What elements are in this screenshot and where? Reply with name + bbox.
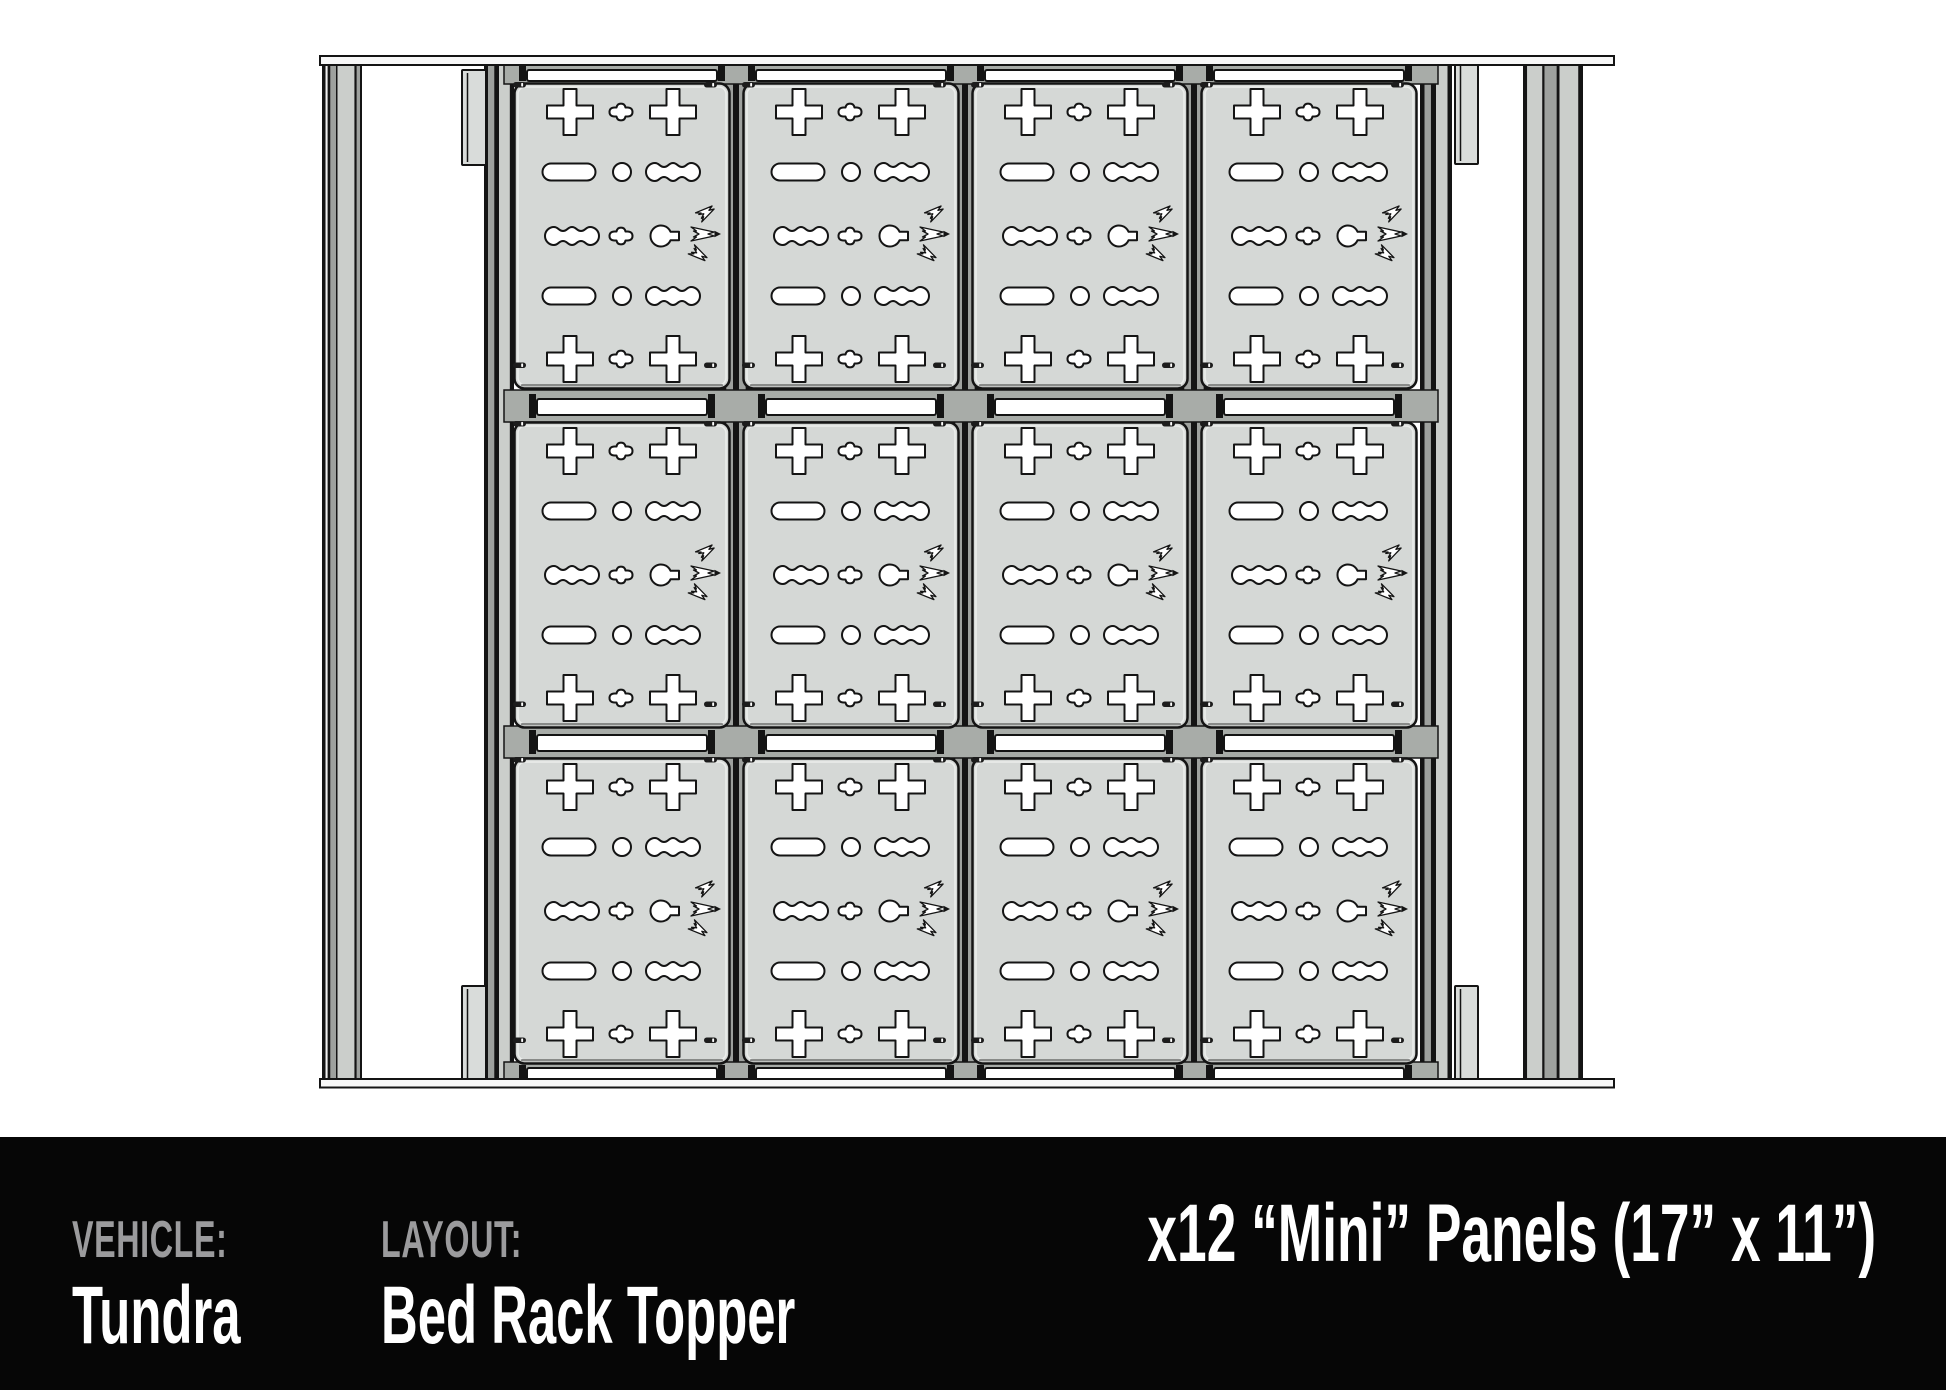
crossbar-slot	[1224, 735, 1394, 751]
vehicle-value-text: Tundra	[72, 1275, 241, 1357]
bottom-side-rail-bar	[320, 1079, 1614, 1088]
crossbar-end-cap	[1166, 394, 1173, 418]
crossbar-end-cap	[758, 730, 765, 754]
mount-bracket	[1455, 63, 1478, 164]
mini-panel	[742, 82, 959, 389]
crossbar-end-cap	[758, 394, 765, 418]
mini-panel	[742, 757, 959, 1064]
layout-label-text: LAYOUT:	[381, 1214, 522, 1266]
mini-panel	[513, 82, 730, 389]
layout-value: Bed Rack Topper	[381, 1275, 1049, 1357]
mini-panel	[971, 82, 1188, 389]
crossbar-end-cap	[1405, 65, 1412, 81]
mini-panel	[971, 421, 1188, 728]
crossbar-end-cap	[1395, 730, 1402, 754]
vehicle-value: Tundra	[72, 1275, 344, 1357]
mini-panel	[1200, 82, 1417, 389]
mini-panel	[1200, 421, 1417, 728]
crossbar-slot	[1224, 399, 1394, 415]
crossbar-slot	[766, 735, 936, 751]
crossbar	[504, 390, 1438, 422]
crossbar-end-cap	[987, 394, 994, 418]
mini-panel	[971, 757, 1188, 1064]
mini-panel	[1200, 757, 1417, 1064]
crossbar-slot	[527, 70, 717, 81]
crossbar-end-cap	[748, 65, 755, 81]
crossbar-end-cap	[947, 65, 954, 81]
crossbar-end-cap	[1216, 394, 1223, 418]
vehicle-label-text: VEHICLE:	[72, 1214, 227, 1266]
vehicle-label: VEHICLE:	[72, 1214, 323, 1266]
top-side-rail-bar	[320, 56, 1614, 65]
crossbar-slot	[1214, 70, 1404, 81]
panel-count-info: x12 “Mini” Panels (17” x 11”)	[755, 1193, 1876, 1275]
mini-panel	[513, 421, 730, 728]
mount-bracket	[1455, 986, 1478, 1082]
panel-count-info-text: x12 “Mini” Panels (17” x 11”)	[1147, 1193, 1876, 1275]
crossbar-end-cap	[718, 65, 725, 81]
crossbar-end-cap	[529, 730, 536, 754]
crossbar-end-cap	[987, 730, 994, 754]
crossbar	[504, 726, 1438, 758]
crossbar-slot	[756, 70, 946, 81]
crossbar-slot	[537, 735, 707, 751]
rack-rail	[484, 62, 514, 1084]
layout-value-text: Bed Rack Topper	[381, 1275, 795, 1357]
crossbar-end-cap	[937, 730, 944, 754]
mount-bracket	[462, 986, 486, 1081]
footer-bar: VEHICLE: Tundra LAYOUT: Bed Rack Topper …	[0, 1137, 1946, 1390]
crossbar-end-cap	[977, 65, 984, 81]
crossbar-end-cap	[529, 394, 536, 418]
crossbar-end-cap	[1395, 394, 1402, 418]
crossbar-end-cap	[1176, 65, 1183, 81]
crossbar-end-cap	[708, 394, 715, 418]
crossbar-slot	[766, 399, 936, 415]
crossbar-end-cap	[708, 730, 715, 754]
bed-rack-diagram	[0, 0, 1946, 1100]
mount-bracket	[462, 70, 486, 165]
layout-label: LAYOUT:	[381, 1214, 609, 1266]
crossbar-end-cap	[1216, 730, 1223, 754]
mini-panel	[513, 757, 730, 1064]
crossbar-slot	[985, 70, 1175, 81]
crossbar-slot	[537, 399, 707, 415]
crossbar-end-cap	[1166, 730, 1173, 754]
crossbar-end-cap	[1206, 65, 1213, 81]
crossbar-slot	[995, 735, 1165, 751]
rack-rail	[1523, 62, 1583, 1084]
rack-rail	[1420, 62, 1452, 1084]
crossbar-end-cap	[937, 394, 944, 418]
crossbar-end-cap	[519, 65, 526, 81]
crossbar-slot	[995, 399, 1165, 415]
mini-panel	[742, 421, 959, 728]
rack-rail	[322, 62, 362, 1084]
page: VEHICLE: Tundra LAYOUT: Bed Rack Topper …	[0, 0, 1946, 1390]
